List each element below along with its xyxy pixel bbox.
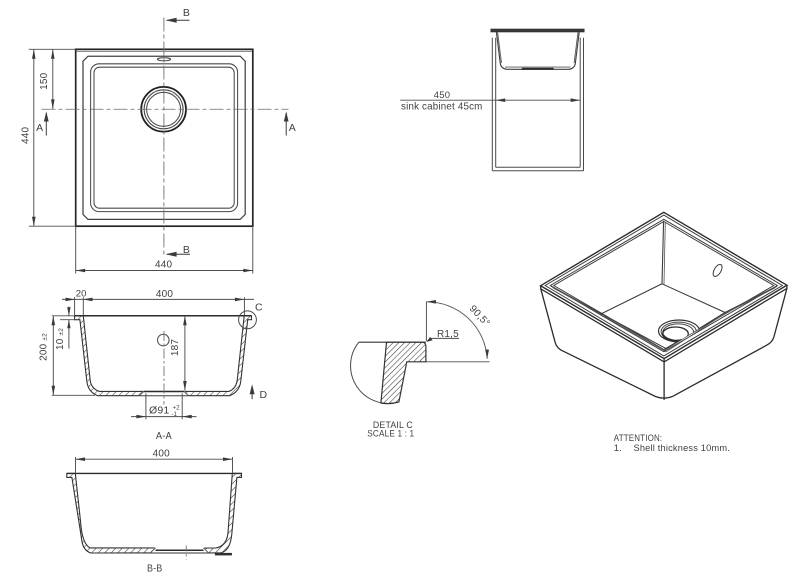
svg-text:B: B [183,7,190,19]
svg-text:187: 187 [170,339,181,357]
svg-text:Shell thickness 10mm.: Shell thickness 10mm. [634,443,731,453]
svg-text:400: 400 [156,289,174,300]
svg-text:20: 20 [76,289,87,300]
svg-text:150: 150 [39,72,50,90]
svg-text:-1: -1 [172,412,178,418]
svg-text:B-B: B-B [147,563,163,575]
svg-text:440: 440 [20,127,31,145]
svg-text:ATTENTION:: ATTENTION: [614,433,663,443]
svg-text:A-A: A-A [156,430,172,442]
svg-text:sink cabinet 45cm: sink cabinet 45cm [401,101,483,112]
svg-text:1.: 1. [614,443,622,453]
svg-text:D: D [260,389,268,401]
svg-text:450: 450 [434,90,450,101]
svg-text:440: 440 [155,259,173,270]
svg-text:C: C [255,302,263,314]
svg-text:SCALE 1 : 1: SCALE 1 : 1 [367,428,414,439]
svg-text:A: A [36,122,43,134]
svg-text:A: A [289,122,296,134]
svg-text:B: B [183,244,190,256]
svg-text:400: 400 [153,449,171,460]
